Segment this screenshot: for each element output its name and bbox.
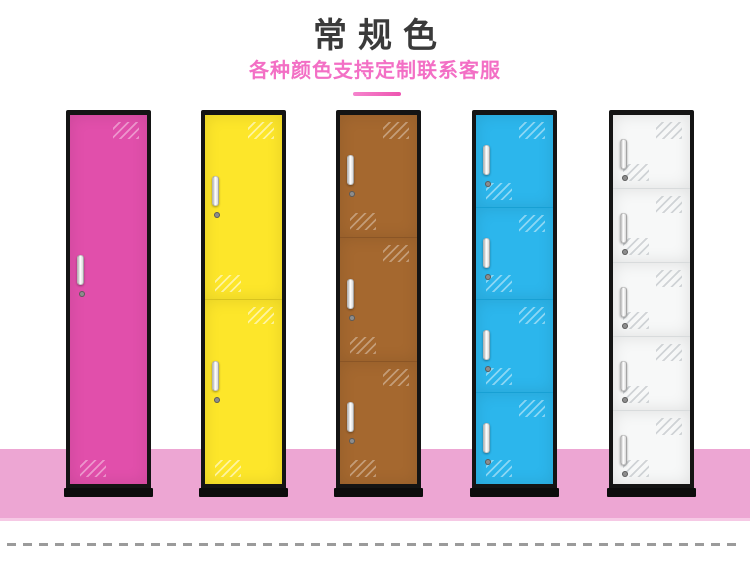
locker-door	[613, 336, 690, 410]
page: 常规色 各种颜色支持定制联系客服	[0, 0, 750, 561]
door-handle	[620, 435, 627, 465]
keyhole-icon	[79, 291, 85, 297]
door-handle	[483, 423, 490, 453]
door-handle	[347, 279, 354, 309]
shine-mark	[350, 213, 376, 230]
door-handle	[483, 145, 490, 175]
locker-yellow	[201, 110, 286, 497]
keyhole-icon	[349, 438, 355, 444]
locker-door	[613, 188, 690, 262]
locker-white	[609, 110, 694, 497]
shine-mark	[519, 307, 545, 324]
shine-mark	[215, 460, 241, 477]
locker-row	[0, 0, 750, 561]
door-handle	[620, 361, 627, 391]
locker-door	[613, 115, 690, 188]
shine-mark	[113, 122, 139, 139]
shine-mark	[656, 418, 682, 435]
keyhole-icon	[485, 459, 491, 465]
shine-mark	[350, 337, 376, 354]
door-handle	[347, 155, 354, 185]
shine-mark	[656, 344, 682, 361]
locker-door	[613, 410, 690, 484]
keyhole-icon	[214, 212, 220, 218]
door-handle	[347, 402, 354, 432]
shine-mark	[656, 196, 682, 213]
locker-door	[205, 299, 282, 484]
shine-mark	[350, 460, 376, 477]
shine-mark	[519, 400, 545, 417]
keyhole-icon	[349, 315, 355, 321]
keyhole-icon	[349, 191, 355, 197]
locker-door	[340, 237, 417, 360]
locker-door-stack	[613, 115, 690, 484]
locker-brown	[336, 110, 421, 497]
door-handle	[212, 361, 219, 391]
shine-mark	[519, 122, 545, 139]
locker-blue	[472, 110, 557, 497]
shine-mark	[383, 122, 409, 139]
shine-mark	[80, 460, 106, 477]
shine-mark	[519, 215, 545, 232]
locker-door	[70, 115, 147, 484]
locker-door-stack	[70, 115, 147, 484]
locker-pink	[66, 110, 151, 497]
locker-door	[476, 115, 553, 207]
locker-door-stack	[205, 115, 282, 484]
keyhole-icon	[214, 397, 220, 403]
locker-door	[205, 115, 282, 299]
door-handle	[620, 139, 627, 169]
shine-mark	[383, 245, 409, 262]
door-handle	[483, 330, 490, 360]
door-handle	[620, 213, 627, 243]
locker-door	[476, 207, 553, 300]
locker-door	[476, 299, 553, 392]
shine-mark	[656, 270, 682, 287]
shine-mark	[656, 122, 682, 139]
door-handle	[620, 287, 627, 317]
locker-door	[476, 392, 553, 485]
door-handle	[483, 238, 490, 268]
shine-mark	[215, 275, 241, 292]
shine-mark	[383, 369, 409, 386]
locker-door	[340, 115, 417, 237]
door-handle	[77, 255, 84, 285]
shine-mark	[248, 307, 274, 324]
locker-door-stack	[340, 115, 417, 484]
locker-door-stack	[476, 115, 553, 484]
shine-mark	[248, 122, 274, 139]
keyhole-icon	[485, 274, 491, 280]
locker-door	[613, 262, 690, 336]
locker-door	[340, 361, 417, 484]
door-handle	[212, 176, 219, 206]
